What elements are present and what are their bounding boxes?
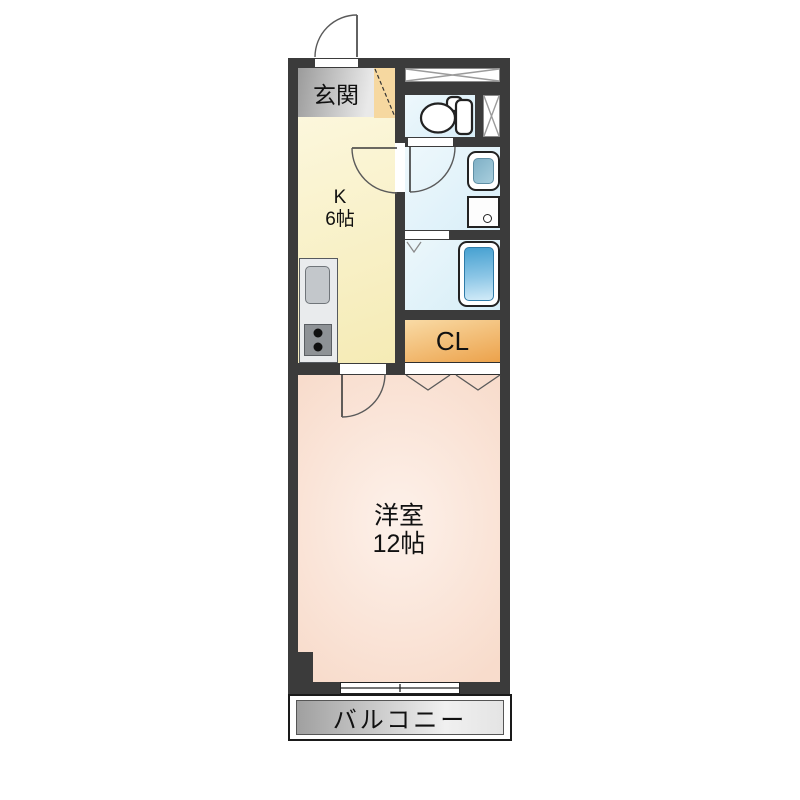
washbasin-bowl <box>473 158 494 184</box>
floor-plan: バルコニー <box>0 0 800 800</box>
wall-notch <box>298 652 313 682</box>
wall-left <box>288 58 298 694</box>
wall-bath-bottom <box>395 310 510 320</box>
closet-opening <box>405 362 500 375</box>
shoe-cabinet <box>374 68 395 118</box>
western-room-label-box: 洋室 12帖 <box>298 501 500 559</box>
wall-toilet-right <box>475 95 483 137</box>
wall-right <box>500 58 510 694</box>
wall-kitchen-vertical-lower <box>395 192 405 375</box>
genkan-label-box: 玄関 <box>298 68 374 117</box>
bathtub-water <box>464 247 494 301</box>
western-room-label: 洋室 <box>374 502 424 530</box>
sliding-window-icon <box>340 682 460 694</box>
genkan-label: 玄関 <box>313 76 359 110</box>
kitchen-label: K <box>334 187 347 209</box>
room-balcony: バルコニー <box>296 700 504 735</box>
western-room-size-label: 12帖 <box>373 530 426 558</box>
room-door-opening <box>340 364 386 374</box>
washing-machine-drain <box>483 214 492 223</box>
balcony-label: バルコニー <box>333 700 468 735</box>
entrance-opening <box>315 59 358 67</box>
kitchen-size-label: 6帖 <box>325 209 355 231</box>
bath-door-opening <box>405 231 449 239</box>
room-toilet <box>405 95 475 137</box>
closet-label-box: CL <box>405 320 500 362</box>
kitchen-door-opening <box>396 143 404 192</box>
stove-icon <box>304 324 332 356</box>
meter-box <box>483 95 500 137</box>
wall-kitchen-vertical-upper <box>395 68 405 143</box>
closet-label: CL <box>436 326 469 357</box>
entrance-door-swing-icon <box>315 15 357 57</box>
pipe-space-box <box>405 68 500 82</box>
wall-toilet-top <box>405 82 500 95</box>
kitchen-sink-icon <box>305 266 330 304</box>
washroom-door-opening <box>408 138 453 146</box>
washing-machine-pan-icon <box>467 196 500 228</box>
kitchen-label-box: K 6帖 <box>300 186 380 232</box>
